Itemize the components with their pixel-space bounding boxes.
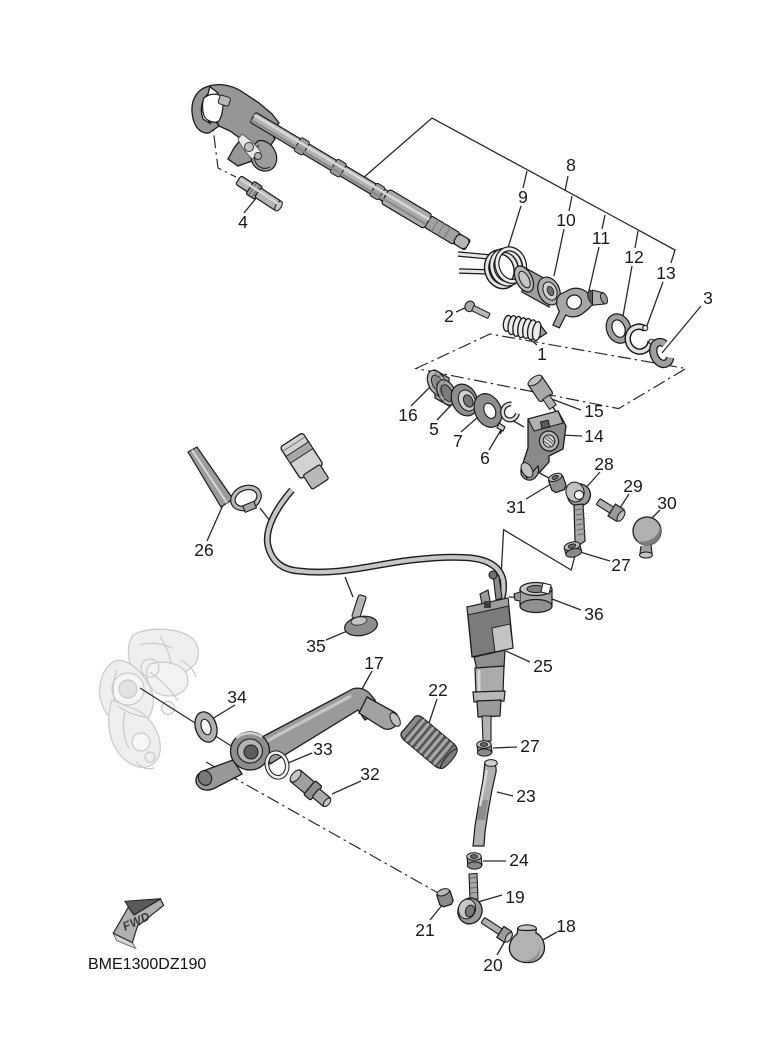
- svg-text:10: 10: [556, 210, 576, 230]
- svg-text:17: 17: [364, 653, 383, 673]
- svg-text:15: 15: [584, 401, 603, 421]
- svg-text:9: 9: [518, 187, 528, 207]
- svg-text:21: 21: [415, 920, 434, 940]
- svg-text:25: 25: [533, 656, 552, 676]
- svg-text:8: 8: [566, 155, 576, 175]
- svg-text:26: 26: [194, 540, 213, 560]
- svg-text:30: 30: [657, 493, 677, 513]
- svg-text:28: 28: [594, 454, 613, 474]
- svg-text:1: 1: [537, 344, 547, 364]
- svg-text:22: 22: [428, 680, 447, 700]
- svg-text:13: 13: [656, 263, 675, 283]
- svg-text:19: 19: [505, 887, 524, 907]
- svg-text:32: 32: [360, 764, 379, 784]
- svg-text:12: 12: [624, 247, 643, 267]
- svg-text:29: 29: [623, 476, 642, 496]
- svg-text:7: 7: [453, 431, 463, 451]
- svg-text:27: 27: [520, 736, 539, 756]
- svg-text:6: 6: [480, 448, 490, 468]
- svg-text:11: 11: [592, 228, 610, 248]
- svg-text:18: 18: [556, 916, 575, 936]
- svg-text:14: 14: [584, 426, 604, 446]
- svg-text:5: 5: [429, 419, 439, 439]
- svg-text:35: 35: [306, 636, 325, 656]
- svg-text:4: 4: [238, 212, 248, 232]
- svg-text:36: 36: [584, 604, 603, 624]
- svg-text:24: 24: [509, 850, 529, 870]
- svg-text:2: 2: [444, 306, 454, 326]
- svg-text:BME1300DZ190: BME1300DZ190: [88, 956, 206, 973]
- svg-text:27: 27: [611, 555, 630, 575]
- svg-text:20: 20: [483, 955, 503, 975]
- svg-text:3: 3: [703, 288, 713, 308]
- svg-text:33: 33: [313, 739, 332, 759]
- svg-text:34: 34: [227, 687, 247, 707]
- svg-text:23: 23: [516, 786, 535, 806]
- svg-text:16: 16: [398, 405, 417, 425]
- svg-text:31: 31: [506, 497, 525, 517]
